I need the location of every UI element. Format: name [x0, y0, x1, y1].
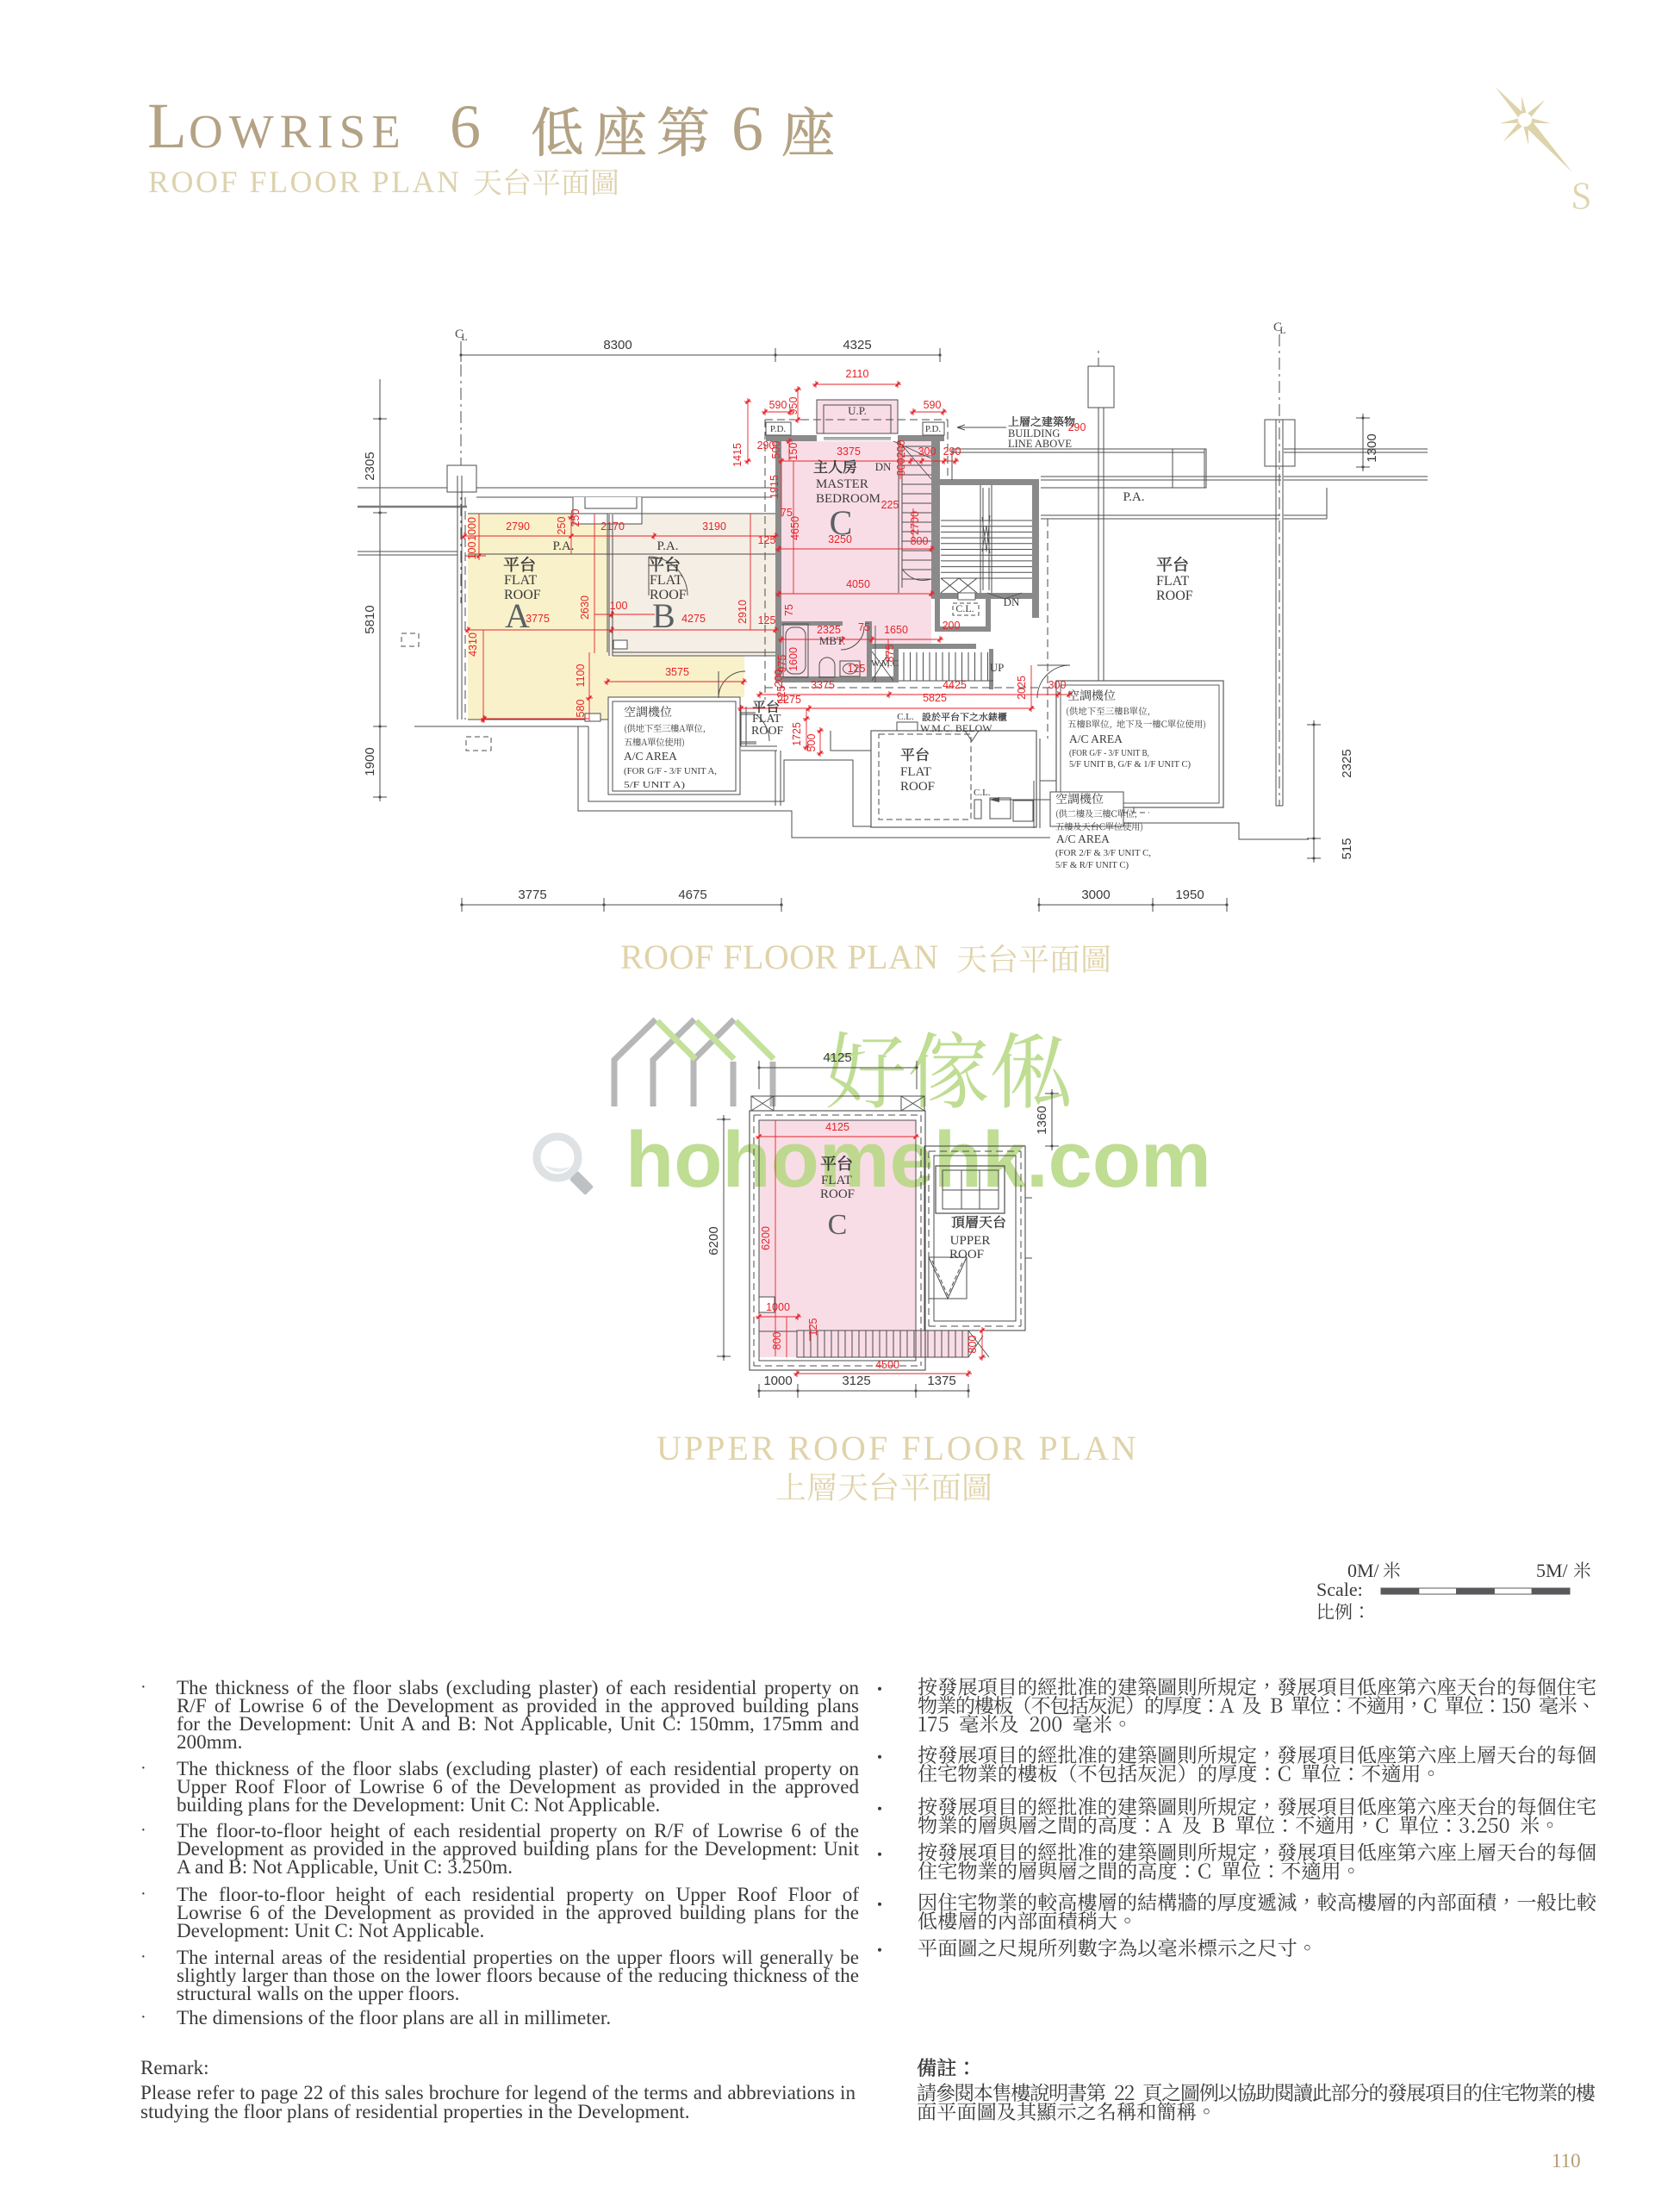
svg-text:3190: 3190 [702, 520, 726, 533]
svg-text:6: 6 [731, 94, 763, 165]
svg-text:FLAT: FLAT [821, 1174, 852, 1187]
svg-text:MBT.: MBT. [819, 634, 845, 647]
svg-text:1600: 1600 [787, 647, 800, 671]
svg-text:2275: 2275 [777, 694, 801, 706]
svg-text:DN: DN [1004, 595, 1020, 608]
svg-text:1915: 1915 [768, 475, 781, 499]
svg-text:4125: 4125 [823, 1050, 851, 1065]
svg-text:590: 590 [924, 399, 942, 411]
svg-text:4500: 4500 [875, 1359, 899, 1371]
svg-text:4650: 4650 [789, 516, 801, 540]
svg-text:8300: 8300 [603, 338, 632, 352]
svg-text:ROOF: ROOF [900, 780, 935, 794]
svg-text:2910: 2910 [737, 600, 749, 624]
svg-text:225: 225 [881, 499, 899, 511]
svg-text:1650: 1650 [884, 624, 908, 636]
svg-text:125: 125 [807, 1318, 819, 1337]
svg-text:(FOR 2/F & 3/F UNIT C,: (FOR 2/F & 3/F UNIT C, [1055, 848, 1151, 858]
svg-text:L: L [1279, 324, 1285, 336]
svg-text:2170: 2170 [600, 520, 625, 533]
svg-text:300: 300 [1048, 679, 1067, 691]
svg-text:P.D.: P.D. [925, 424, 942, 434]
svg-text:1415: 1415 [731, 443, 744, 467]
svg-text:C.L.: C.L. [897, 712, 914, 722]
svg-text:A/C AREA: A/C AREA [1069, 732, 1123, 745]
svg-text:6: 6 [450, 92, 481, 161]
svg-text:4125: 4125 [825, 1121, 849, 1133]
svg-text:B: B [652, 596, 675, 635]
svg-text:(FOR G/F - 3/F UNIT A,: (FOR G/F - 3/F UNIT A, [624, 766, 717, 776]
svg-text:P.A.: P.A. [1123, 490, 1144, 504]
svg-text:1000: 1000 [466, 517, 478, 541]
svg-text:6200: 6200 [706, 1226, 721, 1255]
svg-text:125: 125 [758, 534, 776, 546]
svg-text:2305: 2305 [363, 452, 377, 480]
svg-text:4310: 4310 [467, 633, 479, 657]
svg-text:1900: 1900 [363, 747, 377, 776]
svg-text:500: 500 [770, 441, 782, 459]
svg-text:LINE ABOVE: LINE ABOVE [1008, 438, 1072, 450]
svg-text:hohomehk.com: hohomehk.com [625, 1116, 1211, 1204]
svg-text:1100: 1100 [575, 664, 587, 688]
svg-text:1360: 1360 [1035, 1106, 1049, 1134]
svg-text:2630: 2630 [579, 595, 591, 620]
svg-text:W.M.C. BELOW: W.M.C. BELOW [920, 722, 992, 734]
svg-text:1950: 1950 [1175, 888, 1204, 902]
svg-text:W.M.C: W.M.C [871, 658, 899, 669]
svg-text:950: 950 [787, 397, 800, 415]
svg-text:P.A.: P.A. [656, 539, 678, 553]
svg-text:C.L.: C.L. [974, 788, 991, 798]
svg-text:590: 590 [769, 399, 787, 411]
svg-text:200: 200 [773, 670, 785, 688]
svg-text:3375: 3375 [811, 679, 835, 691]
svg-text:300: 300 [918, 446, 936, 458]
svg-text:L: L [461, 331, 467, 343]
svg-text:UPPER: UPPER [950, 1234, 991, 1248]
svg-text:3375: 3375 [837, 446, 861, 458]
svg-text:580: 580 [575, 700, 587, 718]
svg-text:1375: 1375 [927, 1374, 955, 1388]
svg-text:2025: 2025 [1016, 676, 1028, 700]
svg-text:125: 125 [758, 614, 776, 626]
svg-text:ROOF FLOOR PLAN: ROOF FLOOR PLAN [620, 938, 939, 976]
svg-text:UP: UP [990, 661, 1005, 674]
svg-text:100: 100 [466, 542, 478, 560]
svg-text:C: C [828, 1209, 848, 1241]
svg-text:FLAT: FLAT [900, 765, 931, 779]
svg-text:4675: 4675 [678, 888, 706, 902]
svg-text:75: 75 [783, 604, 795, 616]
svg-text:5M/: 5M/ [1536, 1560, 1569, 1581]
svg-text:L: L [147, 90, 189, 162]
svg-text:250: 250 [556, 517, 568, 535]
svg-text:2700: 2700 [909, 511, 921, 535]
svg-text:1000: 1000 [763, 1374, 792, 1388]
svg-text:4325: 4325 [843, 338, 871, 352]
svg-text:A/C AREA: A/C AREA [624, 750, 677, 763]
svg-text:75: 75 [858, 621, 870, 633]
svg-text:UPPER ROOF FLOOR PLAN: UPPER ROOF FLOOR PLAN [656, 1429, 1139, 1468]
svg-text:800: 800 [911, 535, 929, 547]
svg-text:100: 100 [610, 600, 628, 612]
svg-text:FLAT: FLAT [752, 713, 781, 726]
svg-text:125: 125 [848, 663, 866, 675]
svg-text:FLAT: FLAT [504, 573, 537, 588]
svg-text:4050: 4050 [846, 578, 870, 590]
svg-text:DN: DN [875, 460, 892, 473]
svg-text:A/C AREA: A/C AREA [1056, 832, 1110, 845]
svg-text:515: 515 [1340, 838, 1354, 859]
svg-text:ROOF: ROOF [751, 725, 784, 738]
svg-text:5/F UNIT B, G/F & 1/F UNIT C): 5/F UNIT B, G/F & 1/F UNIT C) [1069, 759, 1191, 770]
svg-text:P.D.: P.D. [770, 424, 787, 434]
svg-text:OWRISE: OWRISE [189, 105, 407, 158]
svg-text:3125: 3125 [842, 1374, 870, 1388]
svg-text:500: 500 [806, 734, 818, 752]
svg-text:ROOF: ROOF [949, 1248, 984, 1262]
svg-text:800: 800 [967, 1336, 979, 1354]
svg-text:5/F UNIT A): 5/F UNIT A) [624, 780, 685, 790]
svg-text:ROOF: ROOF [1156, 589, 1193, 603]
svg-text:800: 800 [895, 458, 907, 477]
svg-text:FLAT: FLAT [650, 573, 682, 588]
svg-text:5810: 5810 [363, 605, 377, 633]
svg-text:1300: 1300 [1365, 433, 1379, 462]
svg-text:(FOR G/F - 3/F UNIT B,: (FOR G/F - 3/F UNIT B, [1069, 748, 1149, 758]
svg-text:A: A [505, 596, 530, 635]
svg-text:1725: 1725 [791, 722, 803, 746]
svg-text:C.L.: C.L. [955, 602, 974, 614]
svg-text:1000: 1000 [766, 1301, 790, 1313]
svg-text:P.A.: P.A. [552, 539, 574, 553]
svg-text:5825: 5825 [923, 692, 947, 704]
svg-text:290: 290 [943, 446, 961, 458]
svg-text:4275: 4275 [681, 613, 706, 625]
svg-text:4425: 4425 [943, 679, 967, 691]
svg-text:75: 75 [781, 507, 793, 519]
svg-text:ROOF: ROOF [820, 1187, 855, 1201]
svg-text:2790: 2790 [506, 520, 530, 533]
svg-text:200: 200 [943, 620, 961, 632]
svg-text:250: 250 [569, 509, 582, 527]
svg-text:U.P.: U.P. [848, 404, 867, 417]
svg-text:3575: 3575 [665, 666, 689, 678]
svg-text:2325: 2325 [1340, 749, 1354, 777]
svg-text:6200: 6200 [760, 1226, 772, 1250]
svg-text:ROOF FLOOR PLAN: ROOF FLOOR PLAN [148, 165, 462, 199]
svg-text:150: 150 [787, 443, 800, 461]
svg-text:3775: 3775 [518, 888, 546, 902]
svg-text:200: 200 [895, 440, 907, 458]
svg-text:800: 800 [771, 1332, 783, 1350]
svg-text:Scale:: Scale: [1316, 1579, 1363, 1600]
svg-text:FLAT: FLAT [1156, 574, 1189, 589]
svg-text:2110: 2110 [846, 368, 869, 380]
svg-text:3000: 3000 [1081, 888, 1110, 902]
svg-text:C: C [830, 503, 853, 542]
svg-text:MASTER: MASTER [816, 477, 868, 491]
svg-text:5/F & R/F UNIT C): 5/F & R/F UNIT C) [1055, 860, 1129, 870]
